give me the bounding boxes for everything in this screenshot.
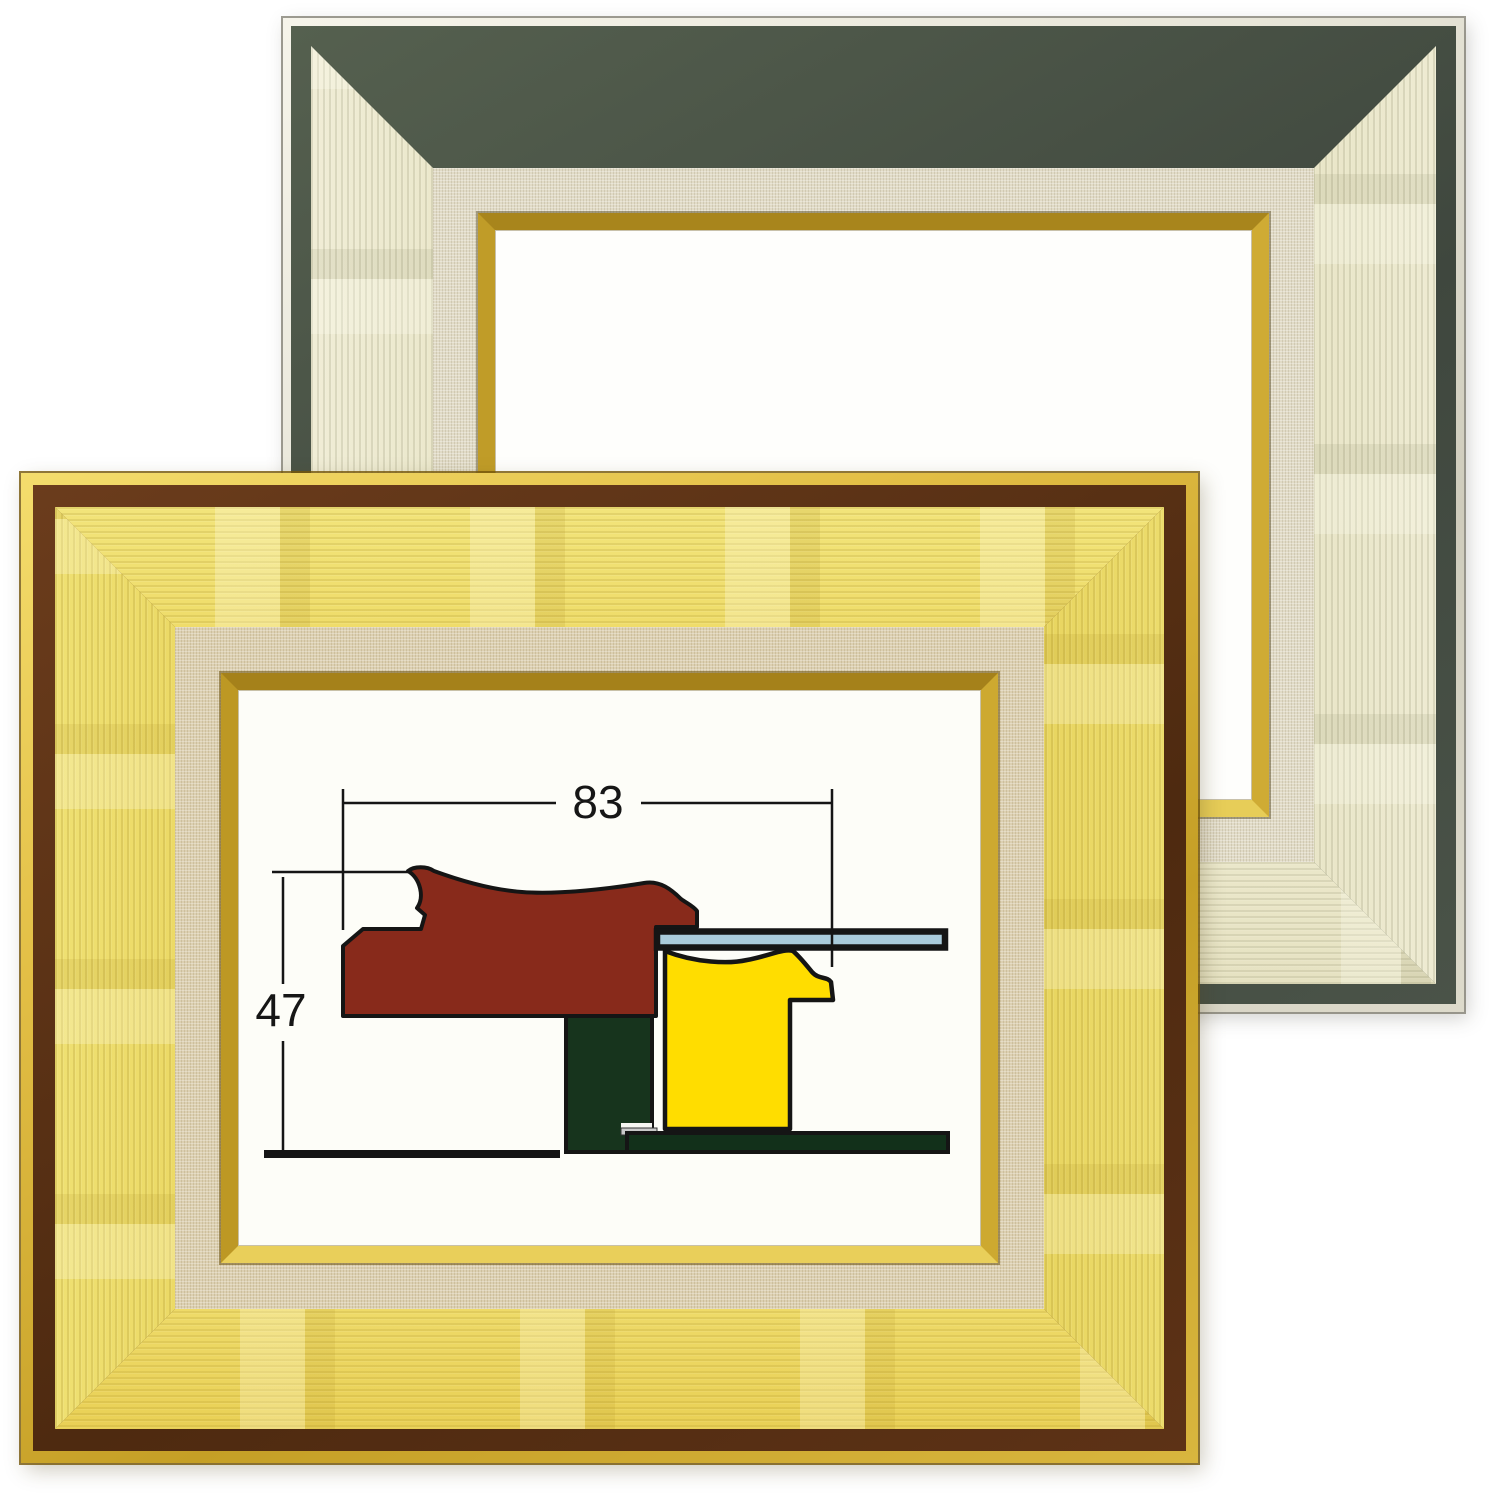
gold-fillet-and-window: 83 47 (221, 673, 998, 1263)
glass-pane (657, 932, 945, 948)
shim-gap (621, 1123, 652, 1128)
height-dimension-label: 47 (255, 984, 306, 1036)
liner-profile (665, 950, 833, 1129)
moulding-profile (343, 867, 697, 1016)
width-dimension-label: 83 (572, 776, 623, 828)
base-line (264, 1150, 560, 1158)
cross-section-diagram: 83 47 (238, 690, 981, 1246)
product-photo: 83 47 (0, 0, 1500, 1500)
backing-board (627, 1133, 948, 1152)
gold-frame: 83 47 (21, 473, 1198, 1463)
